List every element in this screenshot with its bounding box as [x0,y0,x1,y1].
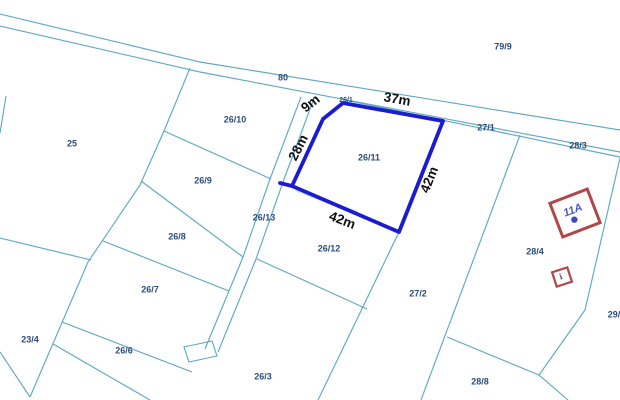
parcel-label-26-11: 26/11 [358,152,380,162]
cadastral-map: 79/98026/127/128/32526/1026/926/1326/826… [0,0,620,400]
boundary-row-26-8 [103,241,229,291]
parcel-label-26-13: 26/13 [253,212,276,222]
cadastral-map-canvas: 79/98026/127/128/32526/1026/926/1326/826… [0,0,620,400]
boundary-row-26-12 [257,259,367,309]
boundary-left-edge-stub [0,96,6,133]
parcel-label-28-3: 28/3 [569,140,587,150]
parcel-label-26-6: 26/6 [115,345,133,355]
parcel-label-23-4: 23/4 [21,334,39,344]
parcel-label-28-4: 28/4 [526,246,544,256]
parcel-label-26-12: 26/12 [318,243,341,253]
boundary-row-26-6 [53,344,150,400]
boundary-parcel-23-4-bottom [0,352,30,397]
boundary-row-26-9 [141,181,243,257]
parcel-label-26-10: 26/10 [224,114,247,124]
boundary-east-of-26-12 [318,232,399,400]
parcel-label-26-1: 26/1 [339,97,353,104]
building-i-label: i [558,271,564,281]
parcel-label-27-2: 27/2 [409,288,427,298]
building-i: i [552,267,572,286]
boundary-west-diagonal [30,68,190,397]
strip-end-rectangle [184,341,217,362]
parcel-label-25: 25 [67,138,77,148]
highlighted-parcel-outline [292,103,443,232]
boundary-row-28-4 [447,337,539,375]
building-11A: 11A [550,189,600,237]
parcel-label-26-3: 26/3 [254,371,272,381]
parcel-label-28-8: 28/8 [471,376,489,386]
dimension-label-3-42m: 42m [417,164,441,195]
boundary-row-26-10 [164,131,271,179]
parcel-label-29-: 29/ [608,309,620,319]
dimension-label-2-28m: 28m [285,132,311,163]
boundary-east-of-28-4 [539,158,620,400]
parcel-label-26-7: 26/7 [141,284,159,294]
parcel-label-26-8: 26/8 [168,231,186,241]
dimension-label-1-37m: 37m [383,89,412,108]
parcel-label-27-1: 27/1 [477,122,495,132]
parcel-label-80: 80 [278,72,288,82]
boundary-parcel-23-4-top [0,238,91,260]
parcel-label-26-9: 26/9 [194,175,212,185]
parcel-label-79-9: 79/9 [494,41,512,51]
boundary-road-bottom [0,26,620,152]
boundary-strip-26-13-west [205,97,301,349]
